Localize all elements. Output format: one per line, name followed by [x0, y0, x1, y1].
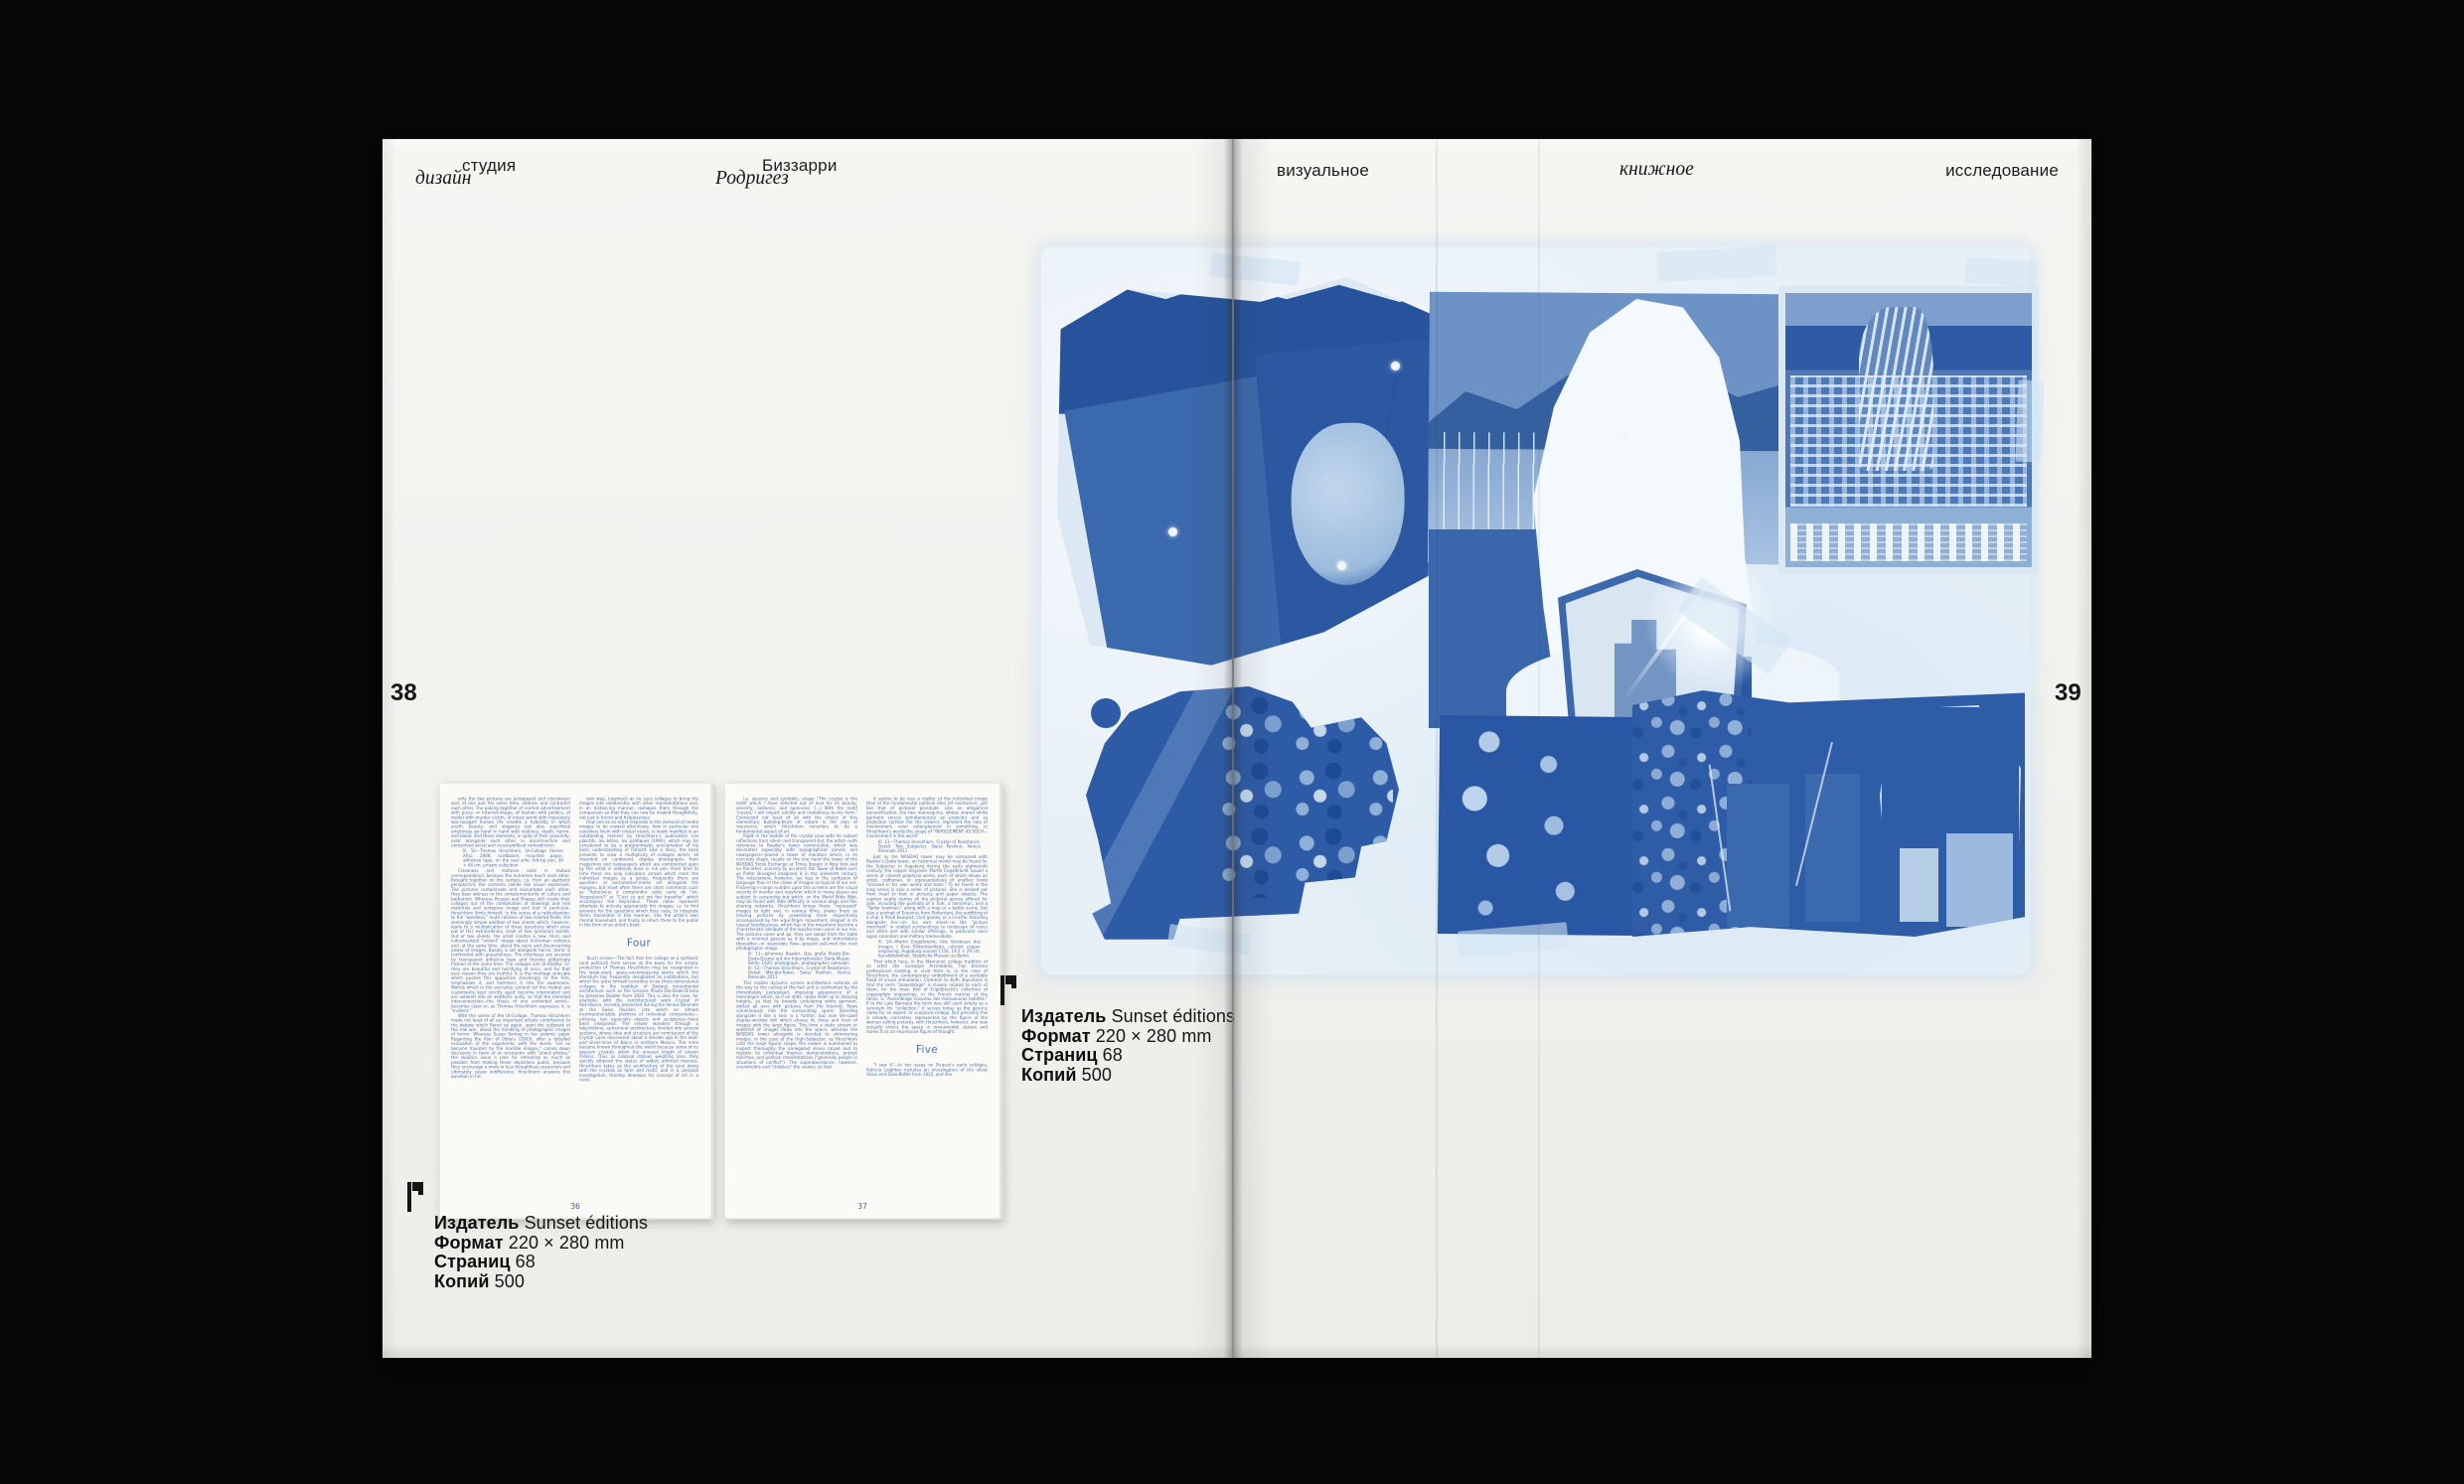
mini-page-37-number: 37 — [725, 1202, 1000, 1211]
colophon-line: Страниц 68 — [1021, 1046, 1235, 1066]
colophon-value: 220 × 280 mm — [1096, 1026, 1212, 1046]
mini-page-36-column-2: own way, inasmuch as he uses collages to… — [579, 797, 698, 1191]
colophon-label: Издатель — [1021, 1006, 1106, 1026]
collage-light-panel-2 — [1900, 848, 1939, 922]
colophon-label: Издатель — [434, 1213, 519, 1233]
colophon-value: 220 × 280 mm — [509, 1233, 625, 1253]
mini-page-37: i.e. sensory and symbolic, shape "The cr… — [724, 783, 1001, 1219]
colophon-label: Страниц — [434, 1252, 511, 1271]
mini-page-36-columns: only the two pictures are juxtaposed and… — [451, 797, 698, 1191]
header-right-word-3: исследование — [1945, 161, 2059, 181]
collage-building-2 — [1805, 774, 1860, 922]
mini-page-36-number: 36 — [440, 1202, 710, 1211]
colophon-label: Формат — [1021, 1026, 1091, 1046]
header-author-name-2: Родригез — [715, 168, 789, 190]
collage-building-1 — [1727, 784, 1789, 927]
mini-text-block: "I saw it"—In her essay on Picasso's ear… — [866, 1063, 988, 1077]
mini-text-block: With the series of the Ut-Collage, Thoma… — [451, 1013, 570, 1079]
mini-text-block: Right in the middle of the crystal cave … — [736, 834, 857, 952]
mini-page-37-columns: i.e. sensory and symbolic, shape "The cr… — [736, 797, 988, 1191]
colophon-right: Издатель Sunset éditions Формат 220 × 28… — [1021, 1007, 1235, 1085]
mini-page-36: only the two pictures are juxtaposed and… — [439, 783, 711, 1219]
header-right-word-2: книжное — [1619, 159, 1694, 181]
colophon-line: Издатель Sunset éditions — [434, 1214, 648, 1234]
colophon-label: Формат — [434, 1233, 504, 1253]
colophon-label: Страниц — [1021, 1045, 1098, 1065]
colophon-left: Издатель Sunset éditions Формат 220 × 28… — [434, 1214, 648, 1291]
page-number-left: 38 — [390, 679, 417, 707]
pin-head-icon — [1391, 362, 1400, 371]
mini-text-block: i.e. sensory and symbolic, shape "The cr… — [736, 797, 857, 834]
collage-monaco-cityscape — [1778, 286, 2039, 574]
colophon-value: Sunset éditions — [1112, 1006, 1236, 1026]
colophon-label: Копий — [1021, 1065, 1076, 1085]
mini-text-block: it seems to be less a matter of the indi… — [866, 797, 988, 838]
mini-text-block: Ill. 11—Johannes Baader, Das große Plast… — [736, 952, 857, 979]
book-spread-photo: { "colors": { "background": "#070707", "… — [0, 0, 2464, 1484]
colophon-line: Копий 500 — [1021, 1066, 1235, 1086]
mini-page-37-column-2: it seems to be less a matter of the indi… — [866, 797, 988, 1191]
mini-text-block: only the two pictures are juxtaposed and… — [451, 797, 570, 848]
mini-text-block: Five — [866, 1042, 988, 1057]
colophon-value: 68 — [1103, 1045, 1123, 1065]
mini-text-block: Four — [579, 936, 698, 951]
colophon-line: Формат 220 × 280 mm — [1021, 1027, 1235, 1047]
tape-strip-icon — [2016, 380, 2045, 463]
mini-text-block: This mobile dynamic screen architecture … — [736, 980, 857, 1069]
pin-dot-icon — [1620, 433, 1629, 442]
mini-text-block: Just as the NASDAQ tower may be compared… — [866, 854, 988, 939]
colophon-line: Формат 220 × 280 mm — [434, 1234, 648, 1254]
colophon-line: Страниц 68 — [434, 1253, 648, 1272]
header-right-word-1: визуальное — [1277, 161, 1369, 181]
tape-strip-icon — [1656, 246, 1776, 282]
mini-text-block: Ill. 14—Martin Engelbrecht, Une Vendeuse… — [866, 940, 988, 959]
collage-light-panel-1 — [1946, 833, 2013, 927]
pin-dot-icon — [1337, 561, 1346, 570]
collage-yachts — [1790, 523, 2027, 562]
tape-strip-icon — [1964, 257, 2038, 288]
colophon-line: Издатель Sunset éditions — [1021, 1007, 1235, 1027]
mini-text-block: Closeness and distance exist in mutual c… — [451, 869, 570, 1014]
collage-maquette-head — [1091, 698, 1121, 728]
mini-text-block: That which here, in the Mannerist collag… — [866, 960, 988, 1034]
colophon-label: Копий — [434, 1271, 489, 1291]
mini-text-block: Ill. 13—Thomas Hirschhorn, Crystal of Re… — [866, 839, 988, 853]
mini-page-36-column-1: only the two pictures are juxtaposed and… — [451, 797, 570, 1191]
flag-mark-icon — [405, 1182, 425, 1212]
collage-city-windows — [1790, 375, 2027, 507]
cyanotype-collage-artwork — [1041, 231, 2075, 998]
colophon-value: 68 — [516, 1252, 536, 1271]
colophon-value: 500 — [1082, 1065, 1112, 1085]
mini-text-block: Ill. 10—Thomas Hirschhorn, Ut-Collage (S… — [451, 849, 570, 868]
mini-text-block: Touch screen—The fact that the collage a… — [579, 957, 698, 1083]
mini-page-37-column-1: i.e. sensory and symbolic, shape "The cr… — [736, 797, 857, 1191]
collage-bottom-right-photo — [1632, 690, 2025, 937]
header-design-word: дизайн — [415, 168, 471, 190]
pin-dot-icon — [1168, 527, 1177, 536]
mini-text-block: How one as an artist responds to the dem… — [579, 820, 698, 928]
flag-mark-icon — [999, 975, 1018, 1005]
colophon-value: Sunset éditions — [525, 1213, 649, 1233]
mini-text-block: own way, inasmuch as he uses collages to… — [579, 797, 698, 820]
collage-roses-panel — [1438, 715, 1638, 936]
book-spread: студия дизайн Биззарри Родригез визуальн… — [383, 139, 2091, 1358]
colophon-value: 500 — [495, 1271, 525, 1291]
colophon-line: Копий 500 — [434, 1272, 648, 1292]
